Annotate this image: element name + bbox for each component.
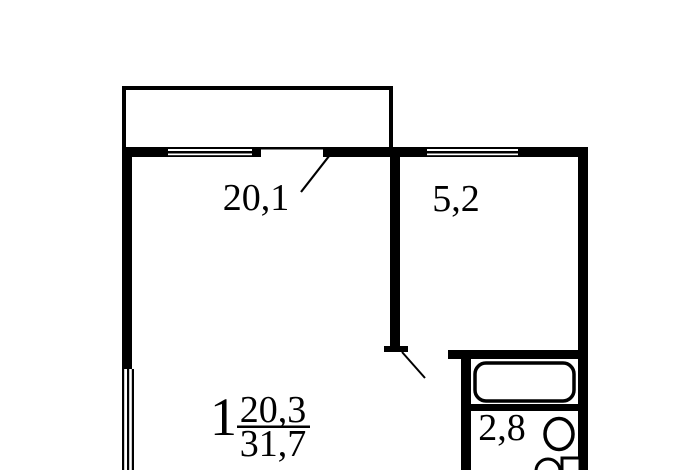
- floor-plan: 20,1 5,2 2,8 1 20,3 31,7: [0, 0, 700, 470]
- apartment-total-area: 31,7: [240, 423, 307, 465]
- living-room-area-label: 20,1: [223, 177, 290, 219]
- living-room-window: [168, 147, 252, 157]
- kitchen-window-inner-line: [427, 155, 518, 157]
- living-room-window-inner-line: [168, 155, 252, 157]
- balcony-door-opening: [261, 147, 323, 157]
- balcony-door-threshold-line: [261, 147, 323, 150]
- balcony-door-gap: [261, 150, 323, 158]
- washbasin-icon: [545, 419, 573, 450]
- kitchen-area-label: 5,2: [432, 178, 480, 220]
- wall-right: [578, 147, 588, 470]
- kitchen-window-middle-line: [427, 151, 518, 154]
- plan-background: [0, 0, 700, 470]
- wall-partition: [390, 157, 400, 346]
- wall-left: [122, 147, 132, 369]
- floor-plan-drawing: 20,1 5,2 2,8 1 20,3 31,7: [0, 0, 700, 470]
- wall-partition-cap: [384, 346, 408, 352]
- side-window-line-3: [132, 369, 134, 470]
- living-room-window-outer-line: [168, 147, 252, 149]
- living-room-window-middle-line: [168, 151, 252, 154]
- side-window-line-1: [122, 369, 124, 470]
- bathtub-icon: [475, 363, 574, 401]
- side-window-line-2: [127, 369, 129, 470]
- toilet-tank-rect: [562, 458, 580, 470]
- kitchen-window: [427, 147, 518, 157]
- apartment-rooms-count: 1: [210, 387, 237, 447]
- toilet-bowl-arc: [536, 459, 560, 470]
- living-room-side-window: [122, 369, 134, 470]
- kitchen-window-outer-line: [427, 147, 518, 149]
- bathroom-area-label: 2,8: [478, 407, 526, 449]
